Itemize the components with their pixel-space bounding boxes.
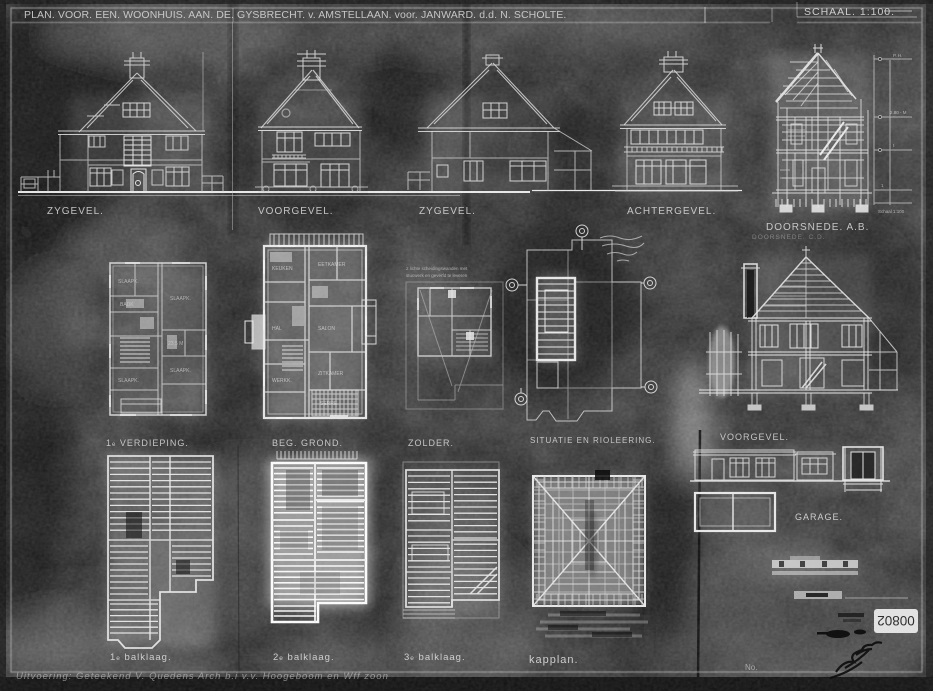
- svg-text:00802: 00802: [877, 613, 915, 628]
- svg-text:ZITKAMER: ZITKAMER: [318, 371, 344, 377]
- svg-text:DOORSNEDE. C.D.: DOORSNEDE. C.D.: [752, 234, 826, 241]
- svg-text:DOORSNEDE. A.B.: DOORSNEDE. A.B.: [766, 222, 869, 233]
- svg-text:23.5 M: 23.5 M: [168, 341, 183, 347]
- svg-text:SLAAPK.: SLAAPK.: [170, 368, 191, 374]
- svg-text:BADK: BADK: [120, 302, 134, 308]
- svg-text:2.80 - M: 2.80 - M: [890, 110, 907, 115]
- svg-text:VOORGEVEL.: VOORGEVEL.: [258, 206, 334, 217]
- svg-text:SERRE: SERRE: [320, 401, 338, 407]
- svg-text:Uitvoering: Geteekend V. Que: Uitvoering: Geteekend V. Quedens Arch b.…: [16, 671, 389, 682]
- svg-text:SLAAPK.: SLAAPK.: [170, 296, 191, 302]
- svg-text:SLAAPK.: SLAAPK.: [118, 279, 139, 285]
- svg-text:kapplan.: kapplan.: [529, 654, 579, 666]
- svg-text:P. H.: P. H.: [893, 53, 902, 58]
- svg-text:Schaal 1:100: Schaal 1:100: [878, 209, 905, 214]
- svg-text:GARAGE.: GARAGE.: [795, 512, 843, 522]
- svg-text:2 lichte scheidingswanden met: 2 lichte scheidingswanden met: [406, 266, 468, 271]
- svg-text:SALON: SALON: [318, 326, 335, 332]
- svg-text:VOORGEVEL.: VOORGEVEL.: [720, 432, 789, 442]
- svg-text:SITUATIE EN RIOLEERING.: SITUATIE EN RIOLEERING.: [530, 436, 656, 445]
- svg-text:BEG. GROND.: BEG. GROND.: [272, 438, 343, 448]
- svg-text:PLAN. VOOR. EEN. WOONHUIS. AAN: PLAN. VOOR. EEN. WOONHUIS. AAN. DE. GYSB…: [24, 9, 566, 21]
- svg-text:ACHTERGEVEL.: ACHTERGEVEL.: [627, 206, 716, 217]
- svg-text:KEUKEN: KEUKEN: [272, 266, 293, 272]
- svg-text:HAL: HAL: [272, 326, 282, 332]
- svg-text:No.: No.: [745, 663, 757, 672]
- svg-text:ZYGEVEL.: ZYGEVEL.: [47, 206, 104, 217]
- svg-text:ZYGEVEL.: ZYGEVEL.: [419, 206, 476, 217]
- svg-text:WERKK.: WERKK.: [272, 378, 292, 384]
- svg-text:stucwerk en geverfd te leveren: stucwerk en geverfd te leveren: [406, 273, 468, 278]
- svg-text:SCHAAL. 1:100.: SCHAAL. 1:100.: [804, 6, 895, 18]
- svg-text:SLAAPK.: SLAAPK.: [118, 378, 139, 384]
- svg-text:1e VERDIEPING.: 1e VERDIEPING.: [106, 438, 189, 448]
- svg-text:ZOLDER.: ZOLDER.: [408, 438, 454, 448]
- svg-text:EETKAMER: EETKAMER: [318, 262, 346, 268]
